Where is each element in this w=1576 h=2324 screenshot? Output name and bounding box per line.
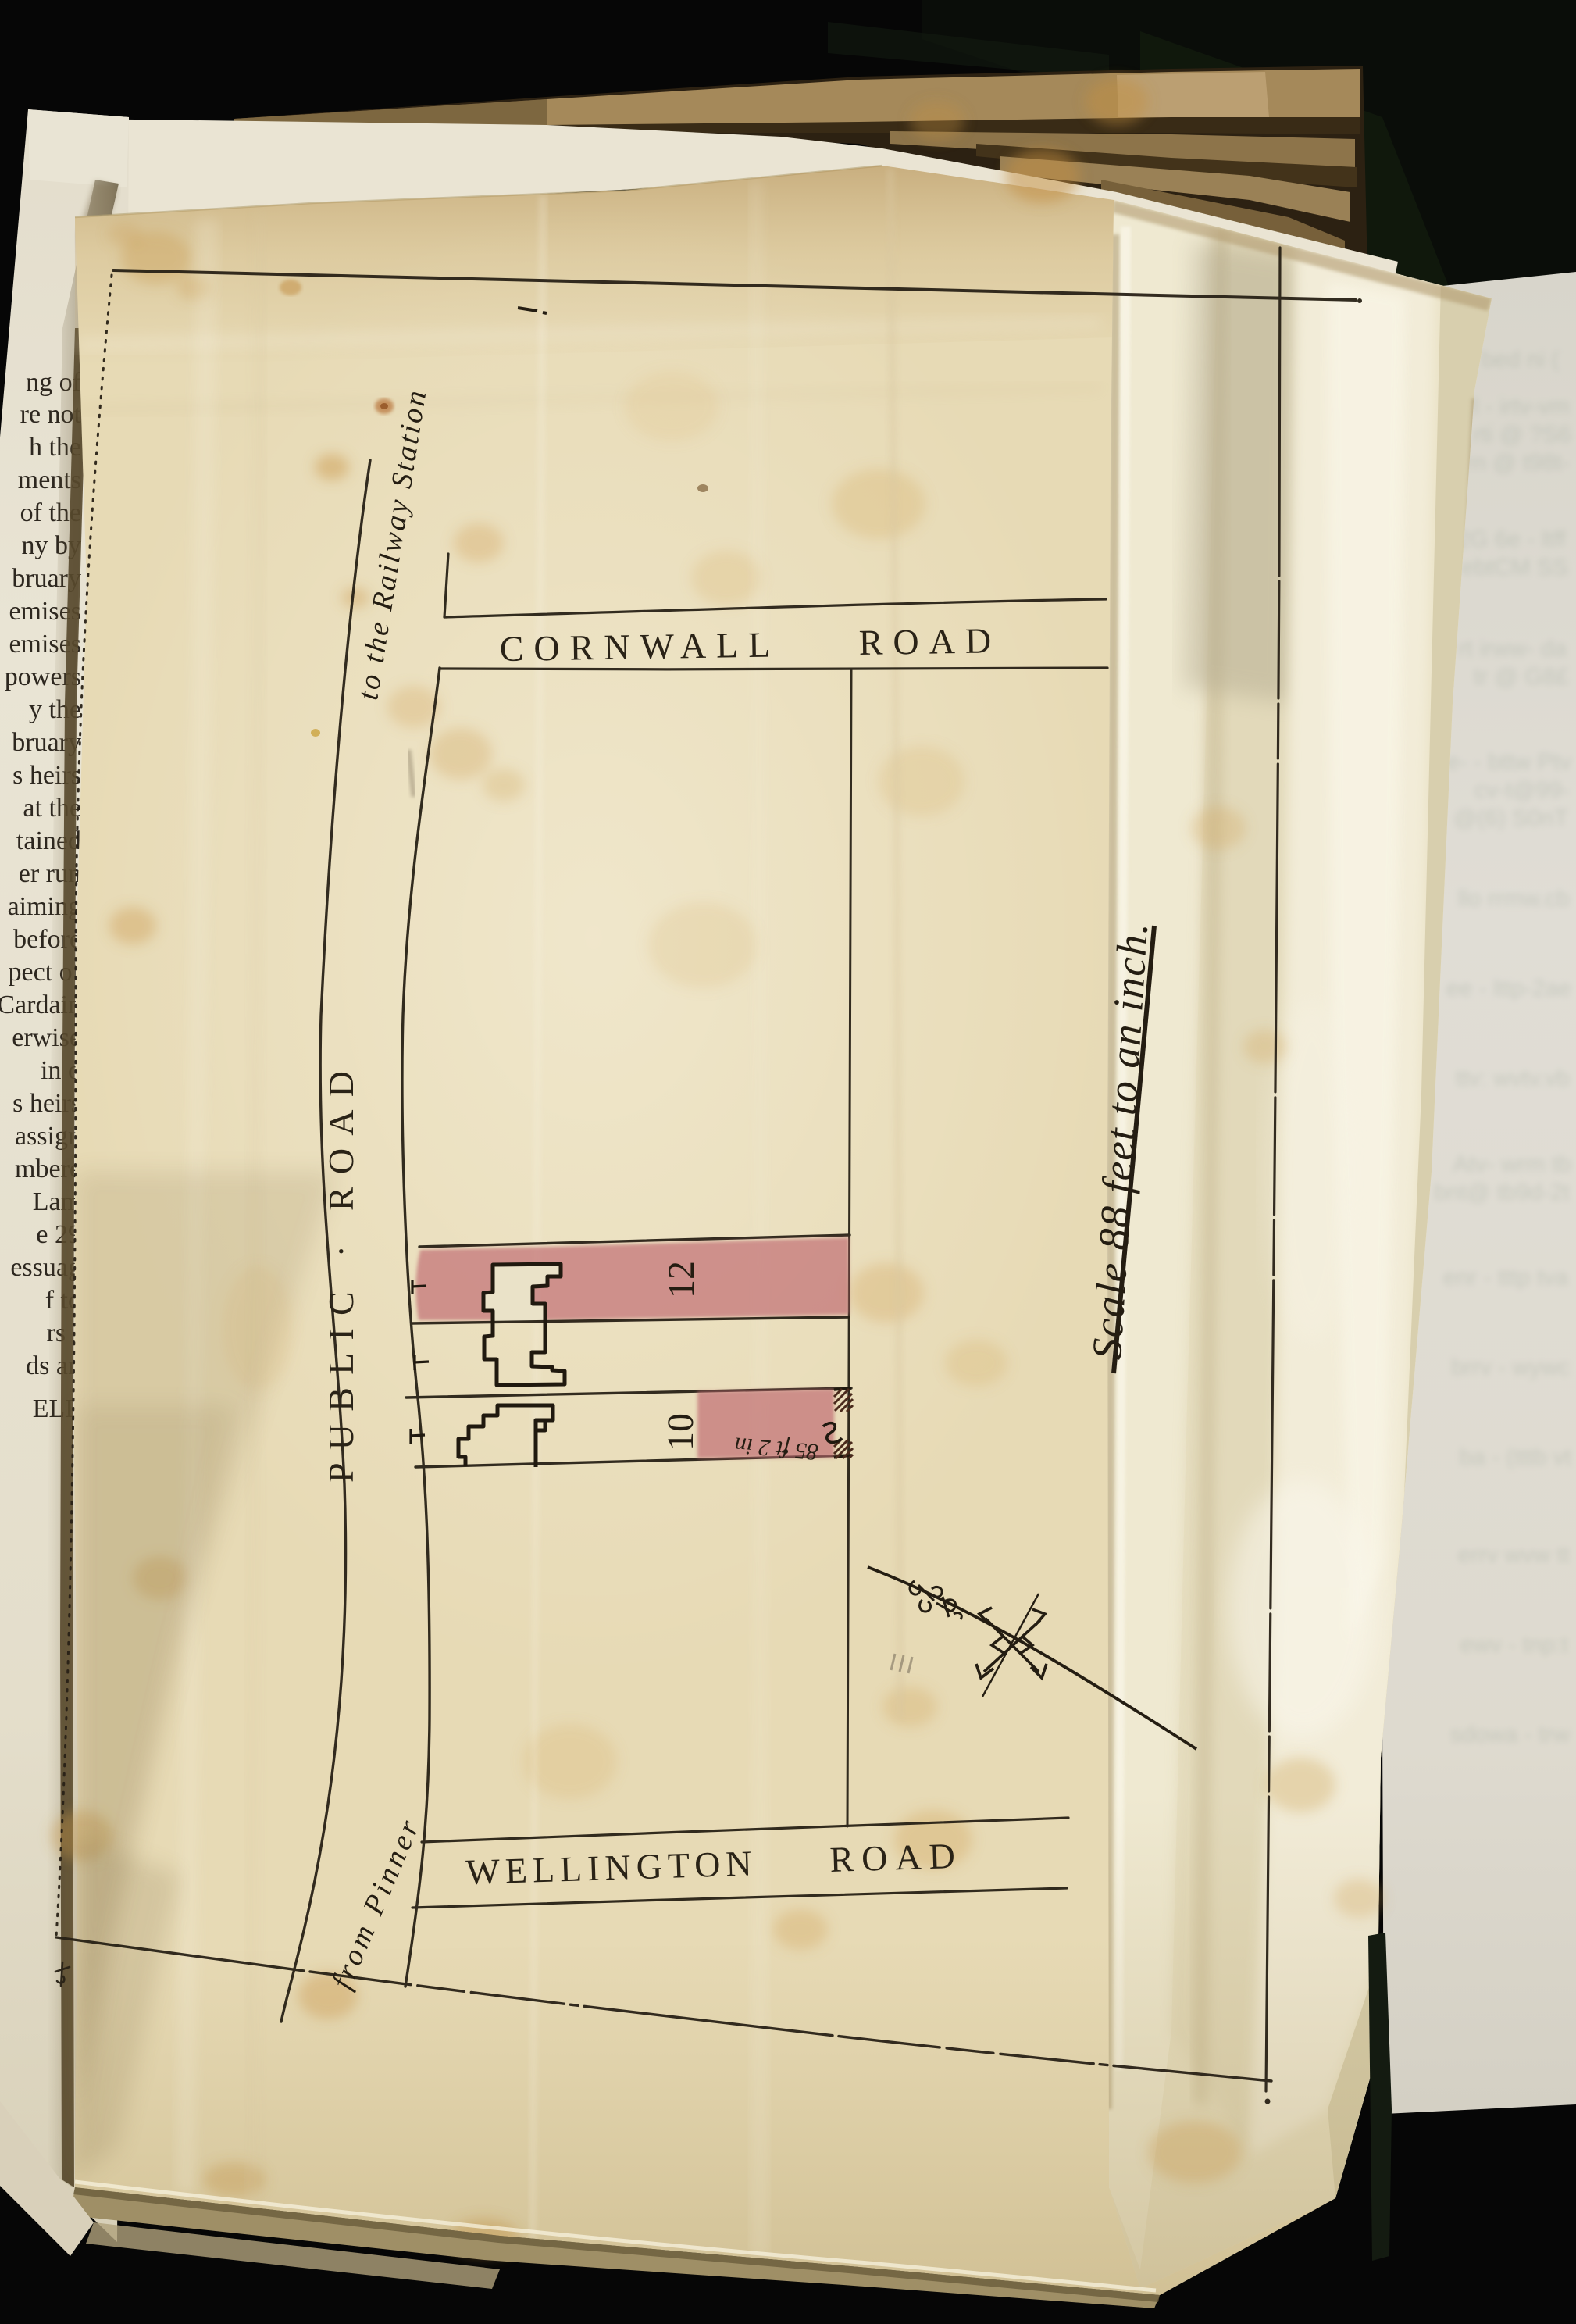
svg-text:ROAD: ROAD [829, 1836, 964, 1880]
svg-text:errv wvw tt: errv wvw tt [1458, 1542, 1571, 1568]
svg-text:rn @ t98t-: rn @ t98t- [1465, 450, 1570, 476]
svg-text:12: 12 [661, 1261, 702, 1298]
svg-text:brrv - wywc: brrv - wywc [1451, 1355, 1570, 1380]
svg-text:2G 6e - ltff: 2G 6e - ltff [1457, 527, 1566, 552]
svg-text:e- - bttw Ptv: e- - bttw Ptv [1446, 749, 1571, 775]
svg-text:PUBLIC · ROAD: PUBLIC · ROAD [321, 1061, 361, 1483]
svg-text:ttv: wvtv.vb: ttv: wvtv.vb [1456, 1066, 1570, 1091]
svg-text:bed ni (: bed ni ( [1482, 347, 1566, 373]
svg-text:ewv - tnp:t: ewv - tnp:t [1460, 1632, 1569, 1658]
svg-text:ba - (tttb vt: ba - (tttb vt [1460, 1444, 1572, 1470]
svg-text:bnt@ tb9d-2t: bnt@ tb9d-2t [1434, 1180, 1571, 1205]
svg-text:rti @ ?S6: rti @ ?S6 [1474, 422, 1572, 448]
svg-text:@(6) S0nT: @(6) S0nT [1453, 805, 1568, 831]
svg-text:enr - tttp tva: enr - tttp tva [1443, 1265, 1568, 1291]
svg-text:sdowa - trw: sdowa - trw [1450, 1722, 1571, 1747]
svg-text:CORNWALL: CORNWALL [499, 624, 780, 669]
svg-text:ROAD: ROAD [858, 620, 1001, 662]
svg-text:tr @ G8£: tr @ G8£ [1474, 664, 1569, 690]
svg-text:Atv- wrm tb: Atv- wrm tb [1453, 1151, 1571, 1177]
svg-text:ebtCM SS: ebtCM SS [1461, 555, 1568, 580]
svg-text:cv-t@99-: cv-t@99- [1474, 777, 1570, 803]
svg-text:ee - lttp-2ae: ee - lttp-2ae [1446, 976, 1571, 1001]
svg-text:rt irww- da: rt irww- da [1459, 636, 1567, 662]
svg-text:llo rrmw.cb: llo rrmw.cb [1458, 886, 1570, 912]
svg-text:10: 10 [660, 1413, 701, 1451]
